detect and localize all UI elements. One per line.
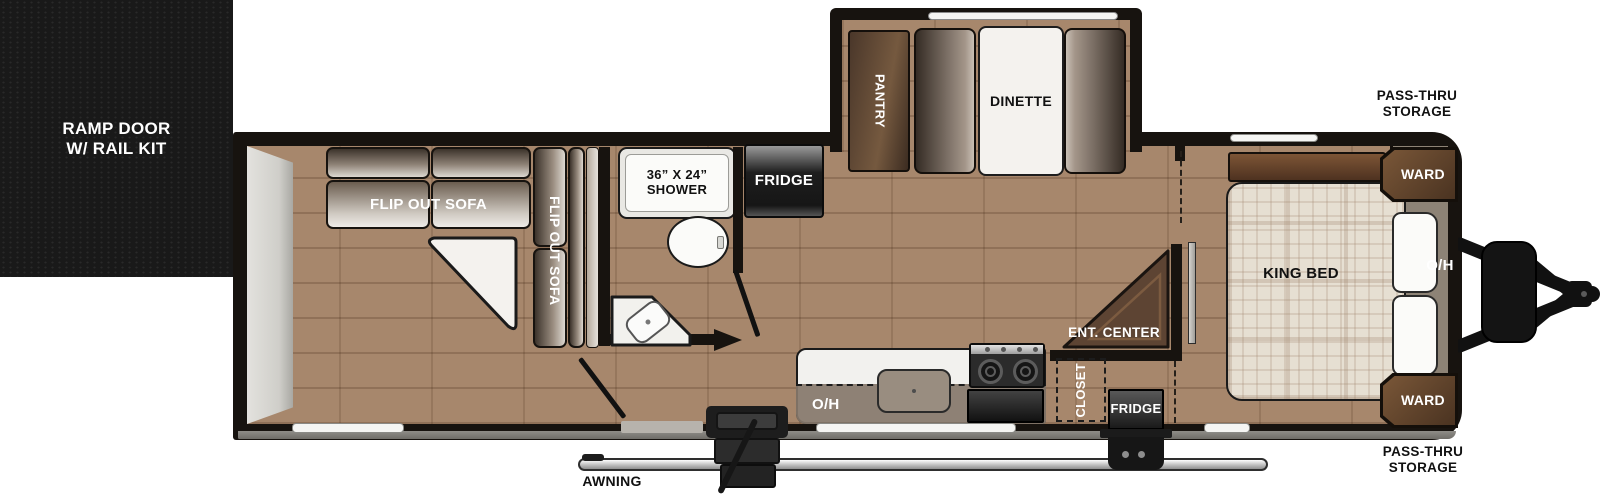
stove-burner-icon <box>1013 359 1038 384</box>
hallway-wall-right <box>1171 244 1182 361</box>
bedroom-dashed-divider <box>1180 151 1182 223</box>
hallway-dashed-divider <box>1174 361 1176 423</box>
shower: 36” X 24” SHOWER <box>618 147 736 219</box>
stove-knob-icon <box>1001 347 1006 352</box>
door-swing-arrow-icon <box>714 329 742 351</box>
wardrobe-bottom: WARD <box>1380 373 1458 428</box>
stove-knob-icon <box>1017 347 1022 352</box>
pantry-label: PANTRY <box>872 74 887 128</box>
bathroom-wall-left <box>599 147 610 346</box>
stove-cooktop <box>969 343 1045 388</box>
stove-burner-icon <box>978 359 1003 384</box>
sofa-side-panel <box>586 147 599 348</box>
pass-thru-storage-label-bottom: PASS-THRU STORAGE <box>1358 444 1488 475</box>
baggage-door <box>292 423 404 433</box>
bedroom-fridge-label: FRIDGE <box>1111 402 1162 417</box>
stove-knob-icon <box>985 347 990 352</box>
dinette-table: DINETTE <box>978 26 1064 176</box>
dinette-bench-left <box>914 28 976 174</box>
dinette-bench-right <box>1064 28 1126 174</box>
oven <box>967 389 1044 423</box>
kitchen-fridge: FRIDGE <box>744 144 824 218</box>
bedroom-overhead-label: O/H <box>1420 257 1460 274</box>
kitchen-overhead-label: O/H <box>812 396 840 413</box>
toilet <box>667 216 729 268</box>
flip-out-sofa-rear-label: FLIP OUT SOFA <box>326 182 531 227</box>
fridge-vent <box>1108 437 1164 470</box>
dinette-label: DINETTE <box>990 93 1052 109</box>
wardrobe-top-label: WARD <box>1380 147 1458 202</box>
pocket-door <box>1188 242 1196 344</box>
bed-headboard-shelf <box>1228 152 1386 182</box>
awning-rail-cap <box>582 454 604 461</box>
stove-knob-icon <box>1033 347 1038 352</box>
ramp-door: RAMP DOOR W/ RAIL KIT <box>0 0 233 277</box>
window-sliver <box>1230 134 1318 142</box>
bathroom-sink <box>610 295 694 347</box>
bedroom-fridge: FRIDGE <box>1108 389 1164 430</box>
flip-out-sofa-side-label: FLIP OUT SOFA <box>540 188 570 313</box>
wardrobe-bottom-label: WARD <box>1380 373 1458 428</box>
wardrobe-top: WARD <box>1380 147 1458 202</box>
entertainment-center-label: ENT. CENTER <box>1058 325 1170 341</box>
vent-dot-icon <box>1122 451 1129 458</box>
floorplan-canvas: RAMP DOOR W/ RAIL KIT PANTRY DINETTE FLI… <box>0 0 1600 498</box>
vent-dot-icon <box>1138 451 1145 458</box>
pass-thru-storage-label-top: PASS-THRU STORAGE <box>1352 88 1482 119</box>
entry-doorway-threshold <box>621 421 703 433</box>
trailer-tongue-hitch-icon <box>1458 198 1600 388</box>
sofa-back-cushion <box>326 147 430 179</box>
kitchen-sink <box>877 369 951 413</box>
baggage-door <box>816 423 1016 433</box>
triangle-table <box>424 234 520 334</box>
baggage-door <box>1204 423 1250 433</box>
sofa-back-panel <box>568 147 585 348</box>
awning-label: AWNING <box>572 473 652 489</box>
pillow <box>1392 212 1438 293</box>
pillow <box>1392 295 1438 376</box>
rear-cargo-strip <box>247 146 293 424</box>
kitchen-fridge-label: FRIDGE <box>755 172 813 189</box>
shower-label: 36” X 24” SHOWER <box>647 168 708 198</box>
propane-tank <box>1482 242 1536 342</box>
bathroom-wall-right <box>733 147 743 273</box>
slideout-window <box>928 12 1118 20</box>
hitch-pin-hole <box>1581 291 1587 297</box>
awning-rail <box>578 458 1268 471</box>
king-bed <box>1226 182 1406 401</box>
sofa-back-cushion <box>431 147 531 179</box>
pantry-cabinet: PANTRY <box>848 30 910 172</box>
ramp-door-label: RAMP DOOR W/ RAIL KIT <box>62 119 170 158</box>
king-bed-label: KING BED <box>1236 265 1366 282</box>
closet-area: CLOSET <box>1056 358 1106 422</box>
closet-label: CLOSET <box>1074 363 1089 418</box>
